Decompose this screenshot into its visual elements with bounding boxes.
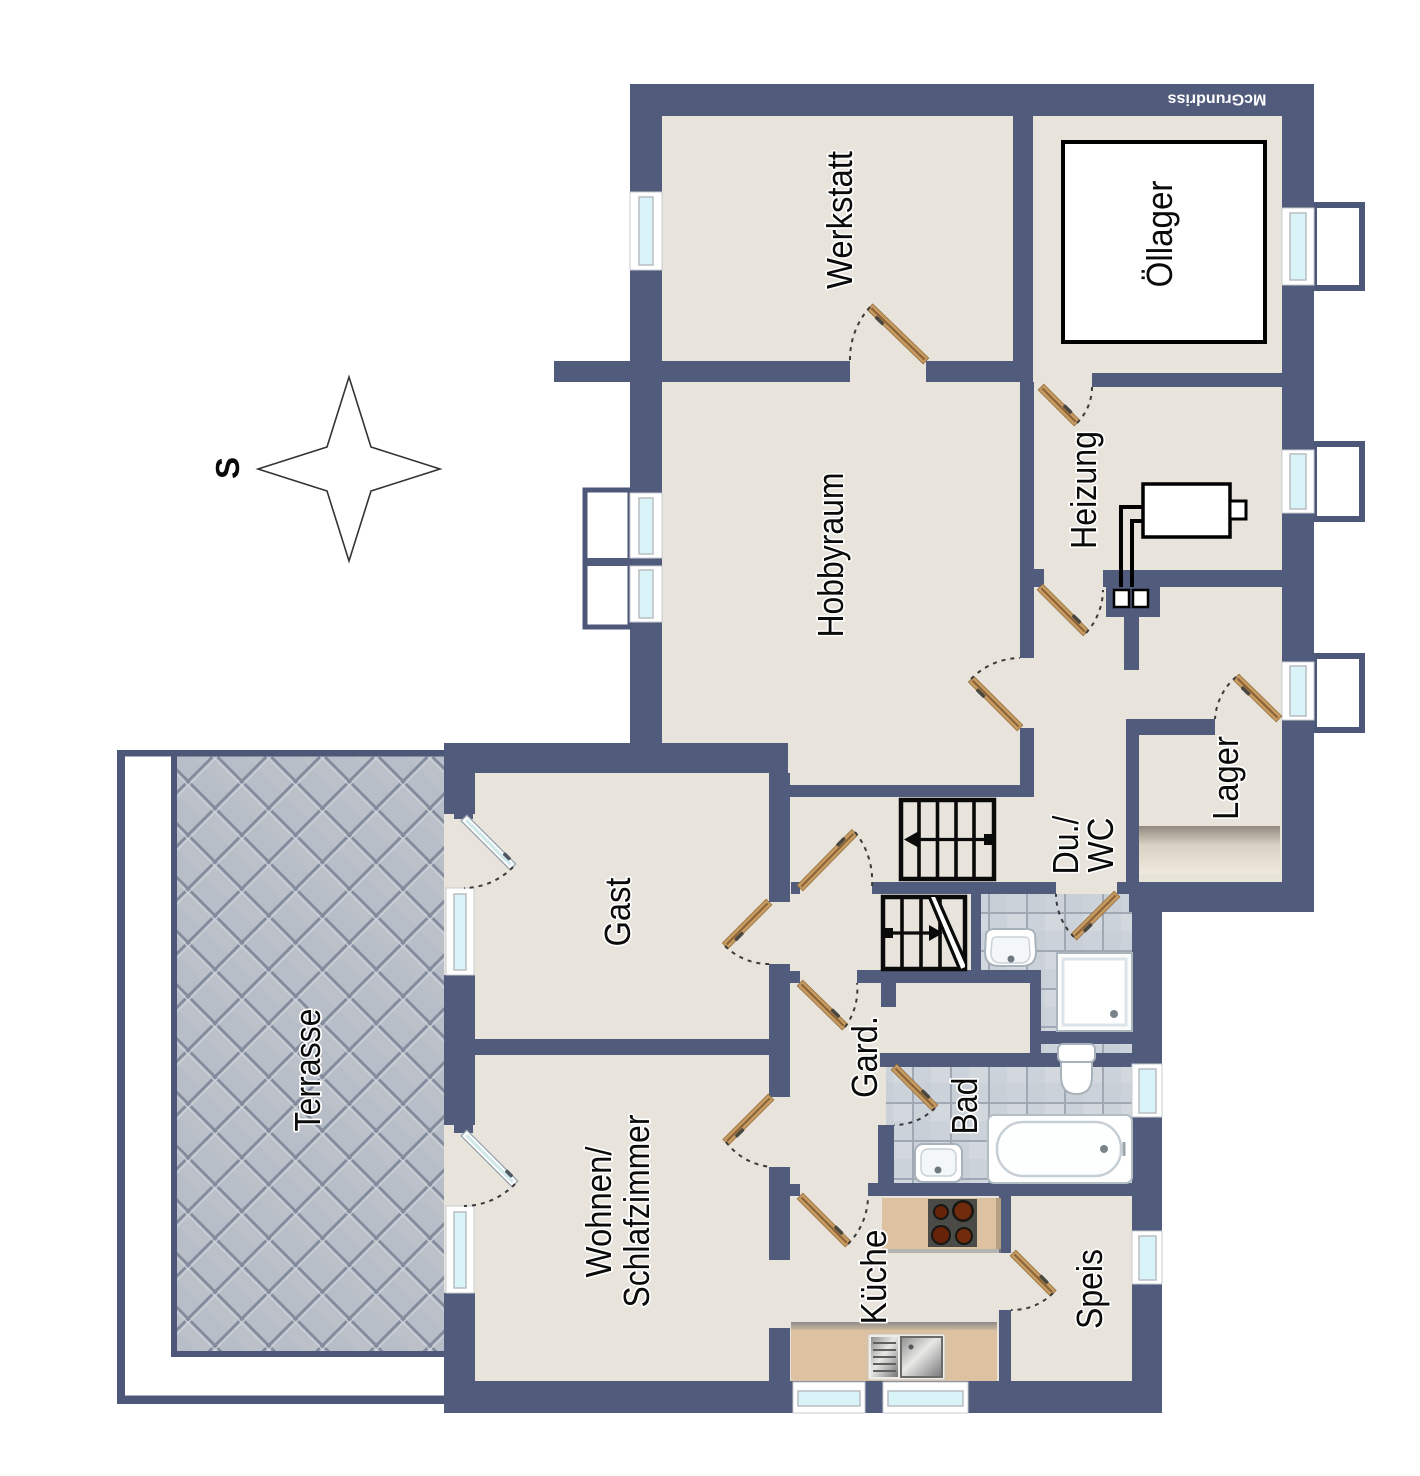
svg-text:Wohnen/: Wohnen/ xyxy=(578,1147,619,1278)
svg-text:Öllager: Öllager xyxy=(1139,181,1180,288)
svg-text:Speis: Speis xyxy=(1069,1249,1110,1329)
svg-text:Gast: Gast xyxy=(597,878,638,947)
svg-text:S: S xyxy=(209,457,246,479)
svg-text:WC: WC xyxy=(1080,818,1121,873)
svg-text:Terrasse: Terrasse xyxy=(287,1009,328,1132)
svg-text:McGrundriss: McGrundriss xyxy=(1168,91,1267,108)
svg-text:Schlafzimmer: Schlafzimmer xyxy=(616,1114,657,1307)
svg-text:Gard.: Gard. xyxy=(844,1016,885,1098)
svg-text:Küche: Küche xyxy=(853,1230,894,1325)
svg-text:Werkstatt: Werkstatt xyxy=(819,151,860,289)
svg-text:Bad: Bad xyxy=(944,1078,985,1135)
svg-text:Lager: Lager xyxy=(1205,736,1246,820)
svg-text:Hobbyraum: Hobbyraum xyxy=(810,473,851,638)
svg-text:Heizung: Heizung xyxy=(1063,431,1104,549)
